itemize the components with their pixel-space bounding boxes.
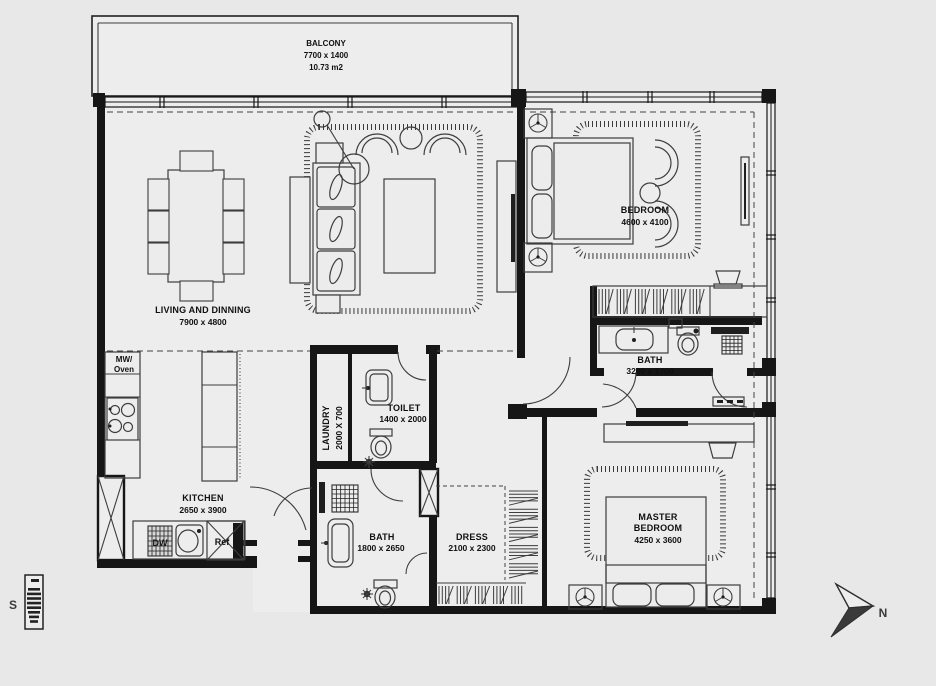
wall-tv <box>626 421 688 426</box>
coffee-table <box>384 179 435 273</box>
master-dims: 4250 x 3600 <box>634 535 682 545</box>
pillow <box>656 584 694 606</box>
microwave-oven-label-line1: MW/ <box>116 355 133 364</box>
shower-head-bar <box>711 327 749 334</box>
bath2-dims: 1800 x 2650 <box>357 543 405 553</box>
toilet-label: TOILET <box>387 403 420 413</box>
balcony-dims: 7700 x 1400 <box>304 51 349 60</box>
fridge-label: Ref <box>215 537 231 547</box>
microwave-oven-label-line2: Oven <box>114 365 134 374</box>
floor-plan-page: BALCONY 7700 x 1400 10.73 m2 LIVING AND … <box>0 0 936 686</box>
laundry-dims: 2000 X 700 <box>334 406 344 450</box>
south-label: S <box>9 598 17 612</box>
tv-screen <box>511 194 515 262</box>
sofa-side-table <box>316 143 343 163</box>
dining-table <box>168 170 224 282</box>
toilet-dims: 1400 x 2000 <box>379 414 427 424</box>
console-table <box>290 177 310 283</box>
sofa <box>313 163 360 295</box>
balcony-label: BALCONY <box>306 39 346 48</box>
bath1-dims: 3200 x 1700 <box>626 366 674 376</box>
dress-label: DRESS <box>456 532 488 542</box>
floor-plan: BALCONY 7700 x 1400 10.73 m2 LIVING AND … <box>0 0 936 686</box>
north-arrow <box>831 584 873 637</box>
bedroom-dims: 4600 x 4100 <box>621 217 669 227</box>
laundry-label: LAUNDRY <box>321 405 331 450</box>
sofa-side-table <box>316 295 340 313</box>
bath1-label: BATH <box>637 355 662 365</box>
bath2-label: BATH <box>369 532 394 542</box>
pillow <box>532 146 552 190</box>
shower-head-bar <box>319 482 325 513</box>
living-label: LIVING AND DINNING <box>155 305 251 315</box>
pillow <box>532 194 552 238</box>
balcony-area: 10.73 m2 <box>309 63 343 72</box>
master-label-line1: MASTER <box>638 512 678 522</box>
kitchen-label: KITCHEN <box>182 493 223 503</box>
north-label: N <box>879 606 888 620</box>
living-dims: 7900 x 4800 <box>179 317 227 327</box>
master-label-line2: BEDROOM <box>634 523 682 533</box>
dress-dims: 2100 x 2300 <box>448 543 496 553</box>
bedroom-label: BEDROOM <box>621 205 669 215</box>
pillow <box>613 584 651 606</box>
kitchen-dims: 2650 x 3900 <box>179 505 227 515</box>
